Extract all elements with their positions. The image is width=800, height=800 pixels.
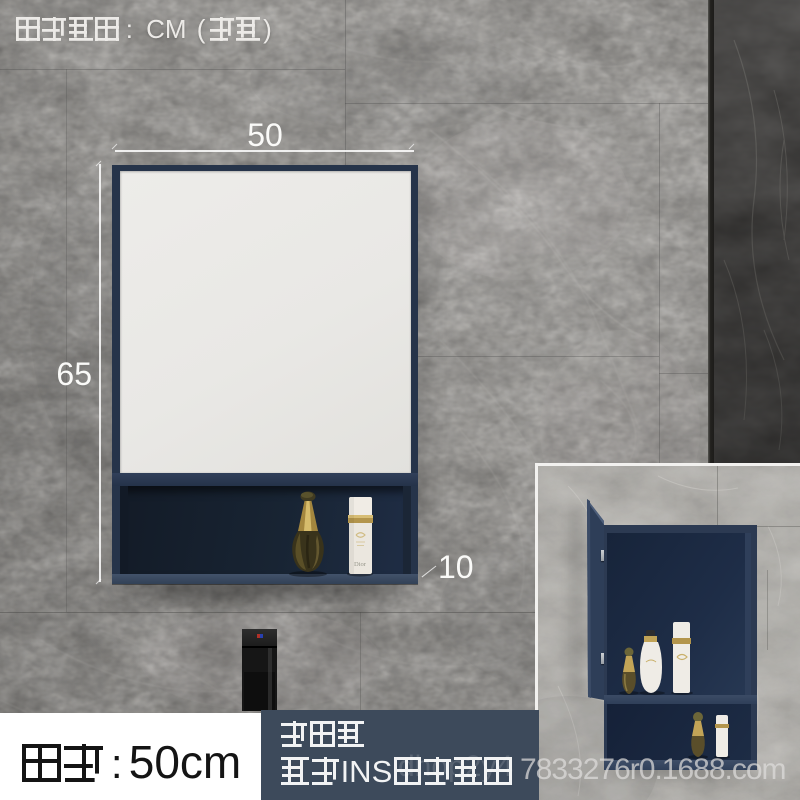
svg-text:Dior: Dior	[354, 561, 367, 568]
